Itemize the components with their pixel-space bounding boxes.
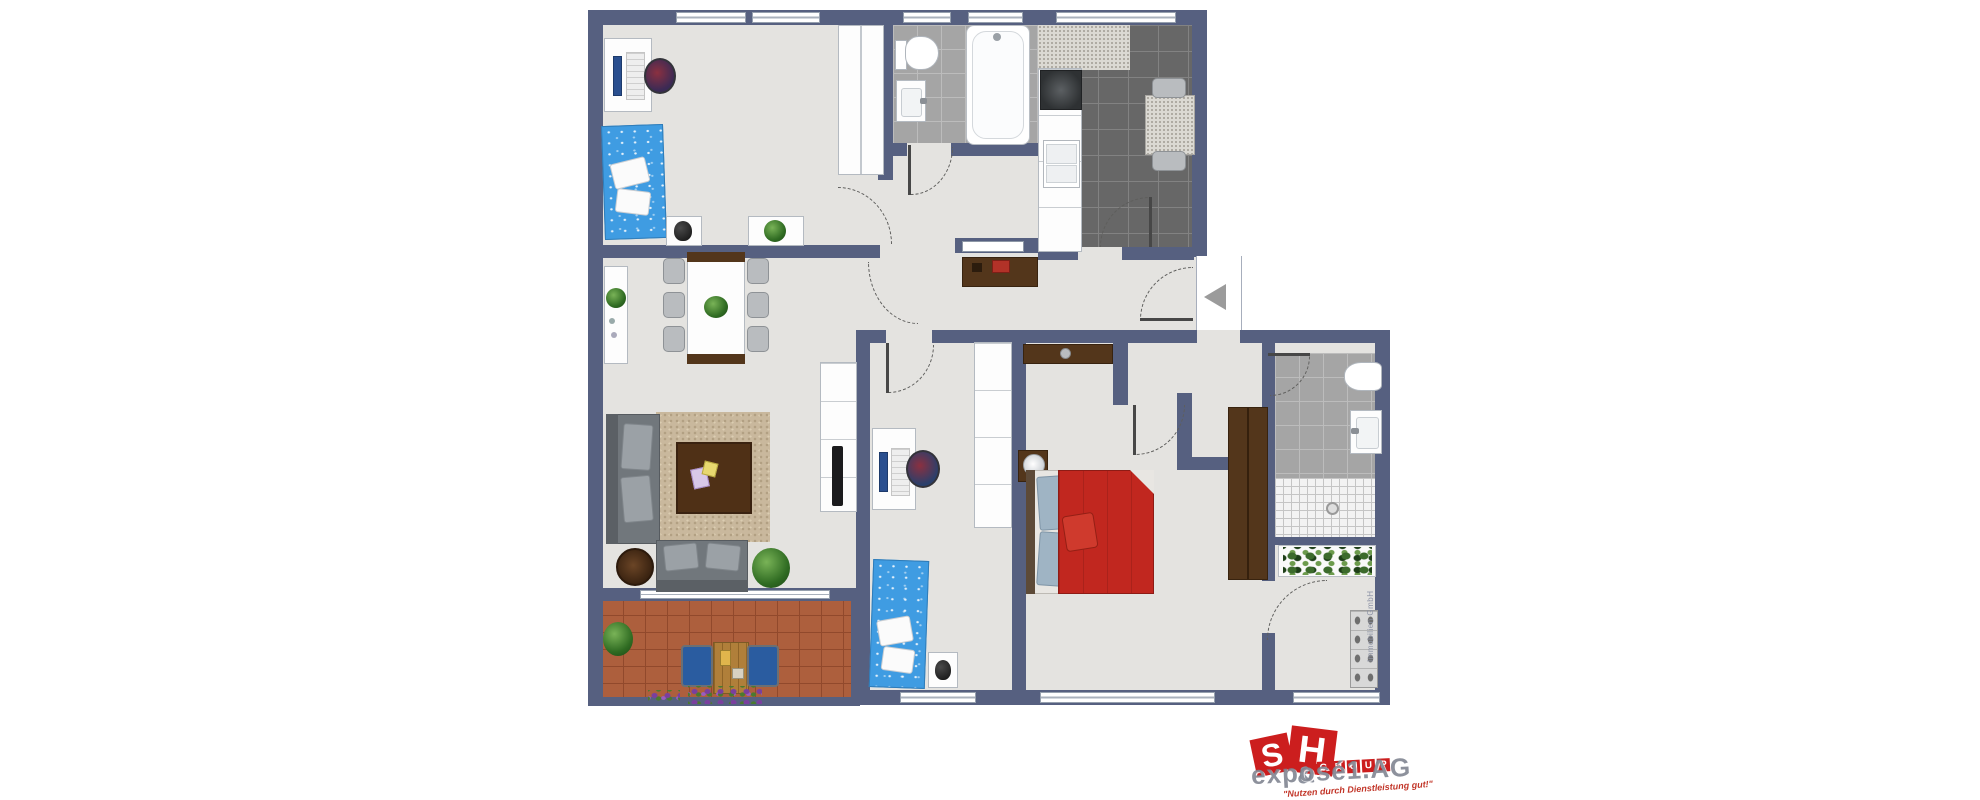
balcony-chair <box>681 645 713 687</box>
wall-kitchen-bottom-right <box>1122 247 1194 260</box>
chair <box>747 292 769 318</box>
cushion <box>620 475 654 523</box>
shelf-lamp-icon <box>1060 348 1071 359</box>
chair <box>747 258 769 284</box>
bathtub-inner <box>972 31 1024 139</box>
watermark-text: Immobilien GmbH <box>1366 588 1375 662</box>
faucet-icon <box>920 98 927 104</box>
bag-icon <box>674 221 692 241</box>
window <box>752 12 820 23</box>
toilet-icon <box>905 36 939 70</box>
entrance-door-leaf <box>1140 318 1193 321</box>
blanket-fold <box>1130 470 1154 494</box>
shower-drain-icon <box>1326 502 1339 515</box>
cushion <box>705 542 742 571</box>
wall-bath-bottom-left <box>893 143 907 156</box>
pillow <box>880 646 915 674</box>
plant-icon <box>764 220 786 242</box>
sink-bowl <box>1356 417 1379 449</box>
dining-table-end <box>687 252 745 262</box>
sideboard <box>604 266 628 364</box>
wall-small-bedroom-right <box>1012 330 1026 690</box>
decor-item <box>611 332 617 338</box>
sofa-backrest <box>606 414 618 544</box>
small-bedroom-door-leaf <box>886 343 889 393</box>
flower-box <box>648 690 680 703</box>
wall-storage-b <box>1262 633 1275 698</box>
flower-box <box>688 686 762 704</box>
kitchen-table <box>1145 95 1195 155</box>
red-item <box>992 260 1010 273</box>
office-chair <box>906 450 940 488</box>
balcony-chair <box>747 645 779 687</box>
kitchen-sink-basin <box>1046 165 1077 183</box>
bathroom-right-door-leaf <box>1268 353 1310 356</box>
plants-row <box>1283 547 1372 575</box>
window-kitchen <box>1056 12 1176 23</box>
wardrobe-white <box>974 342 1012 528</box>
plant-icon <box>704 296 728 318</box>
table-item <box>732 668 744 679</box>
wardrobe-white <box>838 25 884 175</box>
window <box>968 12 1023 23</box>
bathroom-top-door-leaf <box>908 145 911 195</box>
chair <box>747 326 769 352</box>
faucet-icon <box>1351 428 1359 434</box>
window <box>676 12 746 23</box>
cushion <box>663 542 700 571</box>
bath-faucet-icon <box>993 33 1001 41</box>
logo-sh-group: S H & G R O U P exposé1.AG "Nutzen durch… <box>1225 726 1435 800</box>
toilet-icon <box>1344 362 1382 391</box>
window <box>900 692 976 703</box>
kitchen-sink-basin <box>1046 144 1077 164</box>
wall-bathroom-right-bottom <box>1262 537 1390 545</box>
monitor-icon <box>879 452 888 492</box>
bag-icon <box>935 660 951 680</box>
plant-icon <box>606 288 626 308</box>
wall-panel <box>962 241 1024 252</box>
table-item <box>720 650 731 666</box>
plant-icon <box>603 622 633 656</box>
wardrobe-dark <box>1228 407 1268 580</box>
floor-plan-page: Immobilien GmbH S H & G R O U P exposé1.… <box>0 0 1980 800</box>
chair <box>663 292 685 318</box>
dining-table-end <box>687 354 745 364</box>
plant-icon <box>752 548 790 588</box>
window <box>1040 692 1215 703</box>
stove-icon <box>1040 70 1082 110</box>
chair <box>1152 78 1186 98</box>
window <box>1293 692 1380 703</box>
chair <box>663 258 685 284</box>
coffee-table-round <box>616 548 654 586</box>
pillow <box>615 188 652 216</box>
chair <box>1152 151 1186 171</box>
sink-bowl <box>901 88 922 117</box>
dark-item <box>972 263 982 272</box>
master-bedroom-door-leaf <box>1133 405 1136 455</box>
window <box>903 12 951 23</box>
entrance-arrow-icon <box>1204 284 1226 310</box>
wall-notch-left <box>1113 343 1128 405</box>
balcony-rail-right <box>851 598 860 706</box>
cushion <box>620 423 653 471</box>
bed-headboard <box>1026 470 1035 594</box>
office-chair <box>644 58 676 94</box>
chair <box>663 326 685 352</box>
accent-pillow <box>1061 512 1098 553</box>
monitor-icon <box>613 56 622 96</box>
sofa-backrest <box>656 580 748 592</box>
tv-icon <box>832 446 843 506</box>
decor-item <box>609 318 615 324</box>
kitchen-door-leaf <box>1149 197 1152 247</box>
wall-hall-b <box>932 330 1197 343</box>
rug-center <box>676 442 752 514</box>
kitchen-counter-top <box>1038 25 1130 70</box>
papers <box>626 52 645 100</box>
